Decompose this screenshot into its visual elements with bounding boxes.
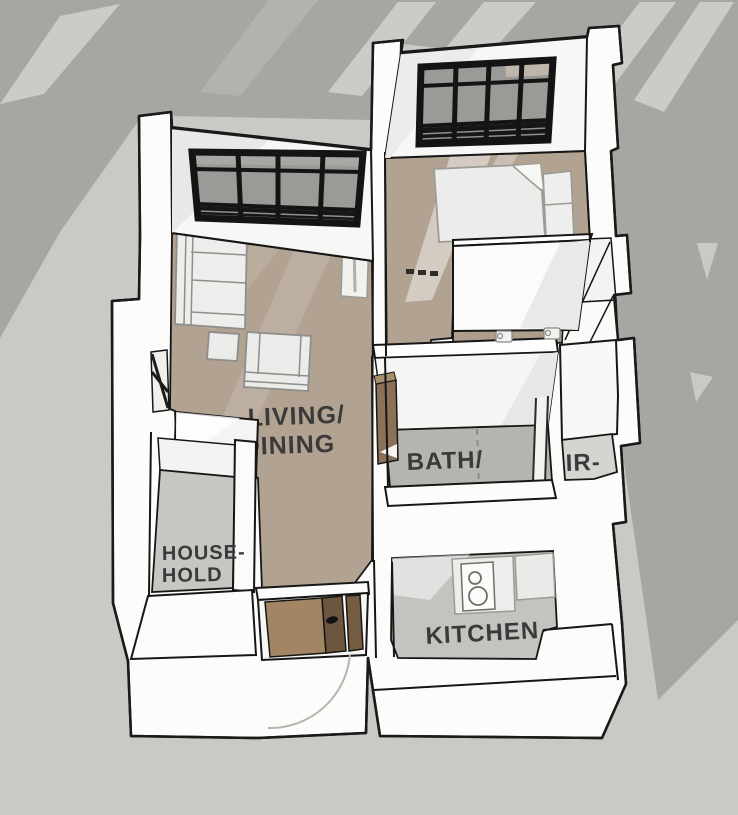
household-label-line1: HOUSE-	[162, 542, 246, 565]
entrance-door-panel-light	[265, 598, 326, 657]
partial-room-label: IR-	[565, 449, 601, 477]
entrance-door-panel-dark2	[346, 595, 363, 651]
household-south-wall	[131, 590, 256, 659]
household-east-wall	[233, 440, 256, 592]
household-room: HOUSE- HOLD	[131, 412, 258, 659]
entrance-door-panel-dark	[322, 596, 346, 653]
window-mullion	[486, 63, 489, 142]
window-mullion	[454, 65, 456, 143]
living-dining-label-line1: LIVING/	[247, 401, 345, 432]
kitchen-counter-right	[515, 553, 555, 600]
floorplan-render-stage: LIVING/ DINING HOUSE- HOLD BATH/	[0, 0, 738, 815]
bedroom-window-wall	[385, 37, 587, 158]
bedroom-window	[419, 60, 553, 144]
partial-room-north-wall	[560, 340, 618, 440]
living-window	[192, 152, 363, 224]
hall-fixture	[544, 328, 560, 339]
window-mullion	[320, 154, 323, 222]
left-wall-window	[151, 350, 169, 412]
hall-fixture	[496, 331, 512, 342]
floorplan-3d-view[interactable]: LIVING/ DINING HOUSE- HOLD BATH/	[0, 0, 738, 815]
household-label-line2: HOLD	[162, 564, 223, 587]
hallway-wall	[453, 234, 592, 342]
bath-label: BATH/	[406, 446, 483, 476]
coffee-table	[207, 332, 239, 361]
bathroom: BATH/	[373, 338, 558, 506]
window-mullion	[238, 153, 241, 220]
